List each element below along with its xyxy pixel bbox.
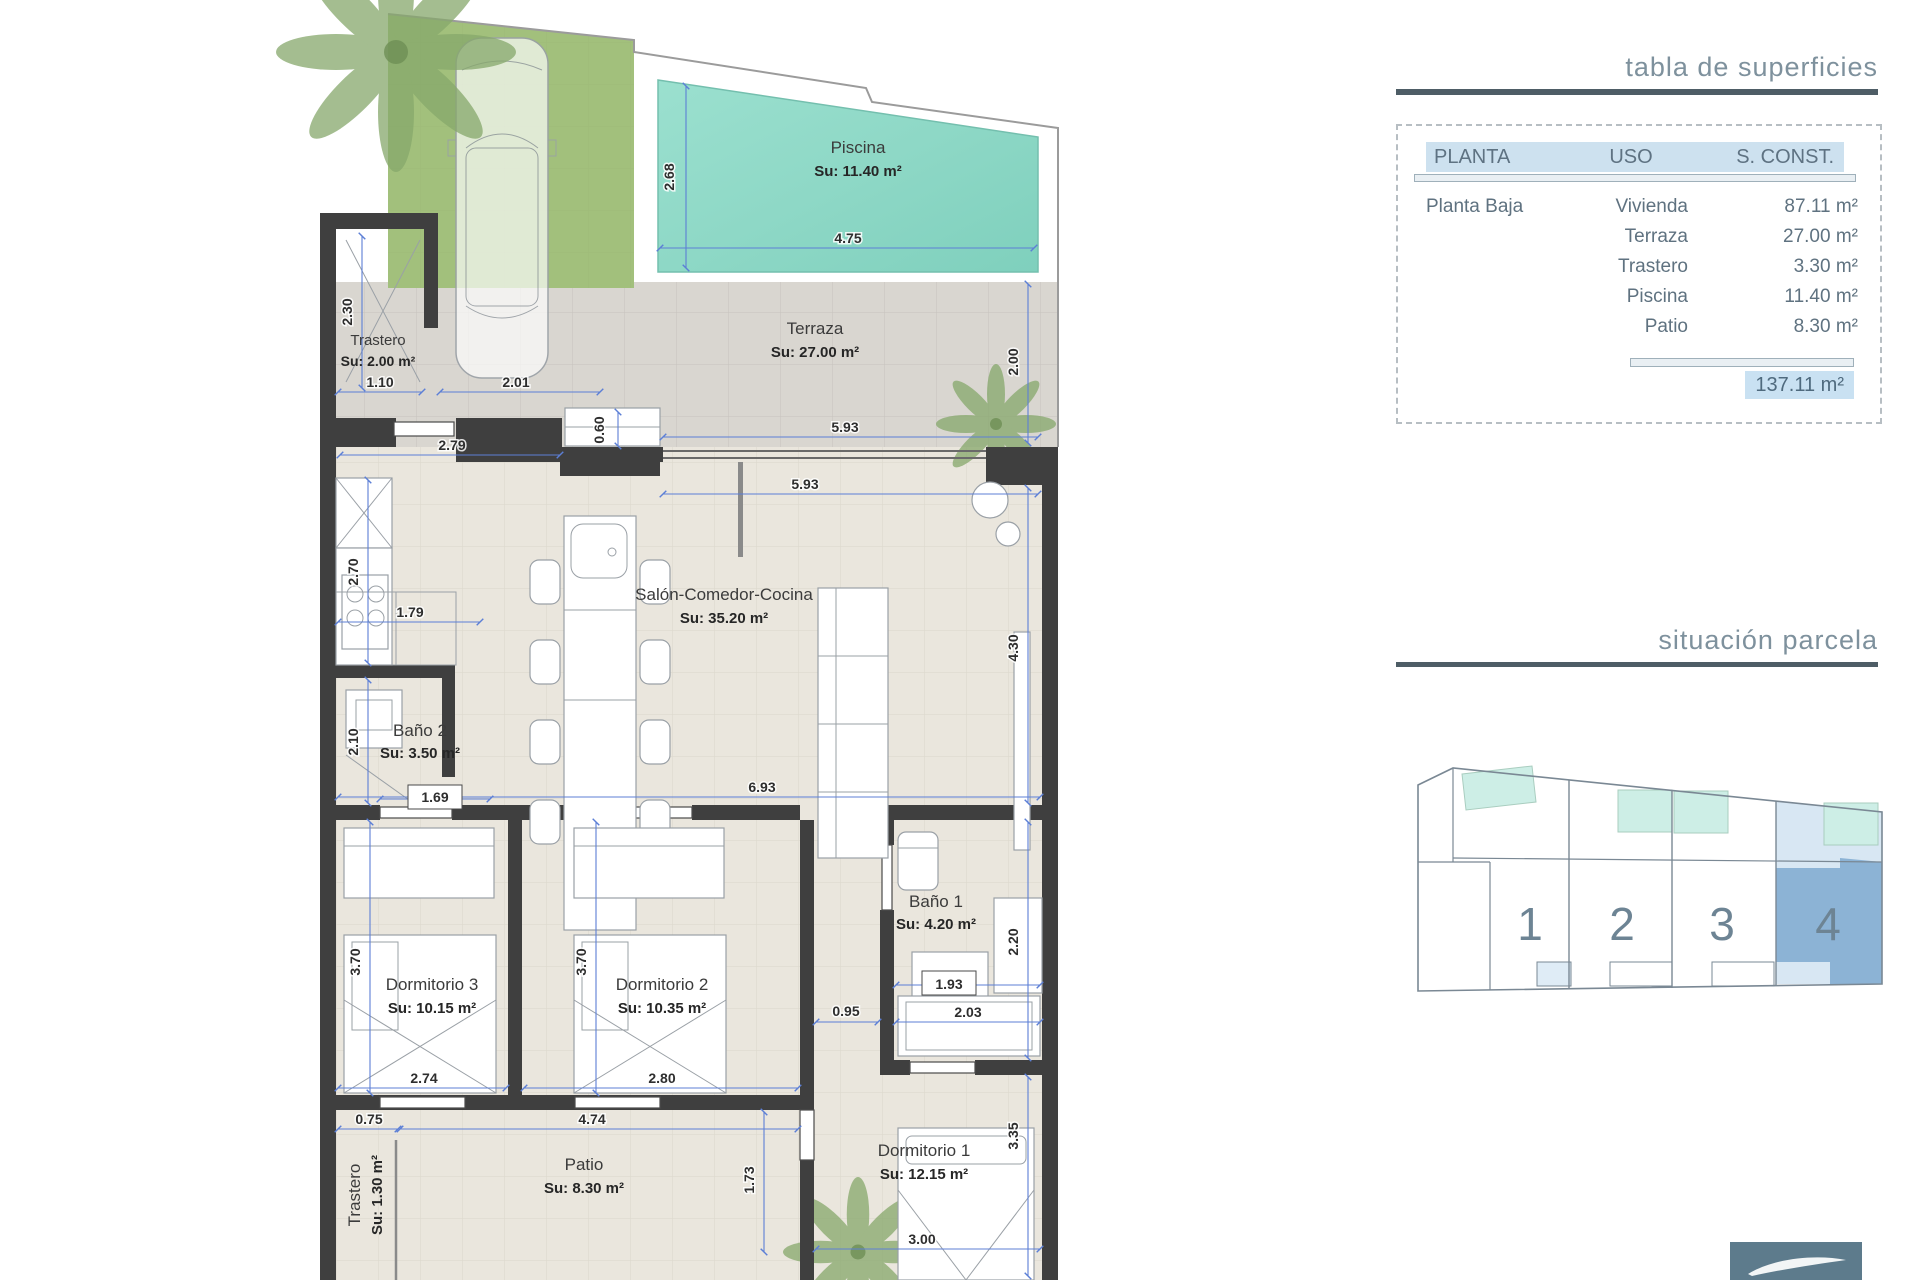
cell-sup: 27.00 m² bbox=[1688, 226, 1858, 248]
parcela-diagram: 1 2 3 4 bbox=[1396, 700, 1896, 1040]
room-label-dorm3: Dormitorio 3 bbox=[386, 975, 479, 994]
dim-kitchen-width: 2.79 bbox=[438, 437, 465, 453]
cell-planta: Planta Baja bbox=[1426, 196, 1554, 218]
header-planta: PLANTA bbox=[1426, 146, 1566, 169]
cell-uso: Patio bbox=[1554, 316, 1688, 338]
cell-uso: Piscina bbox=[1554, 286, 1688, 308]
plant-pot-icon bbox=[972, 482, 1008, 518]
unit-number-3: 3 bbox=[1709, 898, 1735, 950]
room-area-bano1: Su: 4.20 m² bbox=[896, 916, 976, 933]
header-divider-bar bbox=[1414, 174, 1856, 182]
car bbox=[448, 38, 556, 378]
table-row: Patio 8.30 m² bbox=[1426, 312, 1858, 342]
cell-sup: 11.40 m² bbox=[1688, 286, 1858, 308]
surface-table: PLANTA USO S. CONST. Planta Baja Viviend… bbox=[1396, 124, 1882, 424]
room-area-patio: Su: 8.30 m² bbox=[544, 1180, 624, 1197]
dim-bano1-sink: 1.93 bbox=[935, 976, 962, 992]
room-label-trastero-bottom: Trastero bbox=[345, 1164, 364, 1227]
dim-bano1-shower: 2.03 bbox=[954, 1004, 981, 1020]
table-row: Planta Baja Vivienda 87.11 m² bbox=[1426, 192, 1858, 222]
room-label-piscina: Piscina bbox=[831, 138, 886, 157]
dim-bano1-height: 2.20 bbox=[1005, 928, 1021, 955]
dim-salon-width: 6.93 bbox=[748, 779, 775, 795]
dim-dorm3-height: 3.70 bbox=[347, 948, 363, 975]
dim-kitchen-depth: 1.79 bbox=[396, 604, 423, 620]
cell-sup: 3.30 m² bbox=[1688, 256, 1858, 278]
dim-dorm1-width: 3.00 bbox=[908, 1231, 935, 1247]
plant-pot-icon bbox=[996, 522, 1020, 546]
room-label-trastero-top: Trastero bbox=[350, 332, 405, 349]
dim-patio-width: 4.74 bbox=[578, 1111, 605, 1127]
logo-swoosh-icon bbox=[1730, 1242, 1862, 1280]
header-sconst: S. CONST. bbox=[1696, 146, 1844, 169]
dim-bano2-door: 1.69 bbox=[421, 789, 448, 805]
room-area-piscina: Su: 11.40 m² bbox=[814, 163, 902, 180]
total-wrap: 137.11 m² bbox=[1745, 374, 1854, 397]
room-area-trastero-top: Su: 2.00 m² bbox=[341, 353, 416, 369]
toilet-icon bbox=[898, 832, 938, 890]
dim-salon-top-width: 5.93 bbox=[791, 476, 818, 492]
room-area-salon: Su: 35.20 m² bbox=[680, 610, 768, 627]
dim-hall-width: 0.95 bbox=[832, 1003, 859, 1019]
room-label-terraza: Terraza bbox=[787, 319, 844, 338]
unit2-notch bbox=[1610, 962, 1672, 986]
total-surface: 137.11 m² bbox=[1745, 371, 1854, 399]
dim-terraza-width: 5.93 bbox=[831, 419, 858, 435]
unit2-pool bbox=[1618, 790, 1672, 832]
dim-trastero-door: 1.10 bbox=[366, 374, 393, 390]
room-area-bano2: Su: 3.50 m² bbox=[380, 745, 460, 762]
room-label-dorm2: Dormitorio 2 bbox=[616, 975, 709, 994]
table-row: Piscina 11.40 m² bbox=[1426, 282, 1858, 312]
dim-bano2-height: 2.10 bbox=[345, 728, 361, 755]
header-uso: USO bbox=[1566, 146, 1696, 169]
dim-pool-width: 4.75 bbox=[834, 230, 861, 246]
dim-terraza-height: 2.00 bbox=[1005, 348, 1021, 375]
dim-dorm2-width: 2.80 bbox=[648, 1070, 675, 1086]
dim-kitchen-height: 2.70 bbox=[345, 558, 361, 585]
sofa bbox=[818, 588, 888, 858]
parcela-title: situación parcela bbox=[1396, 625, 1878, 656]
surface-table-title: tabla de superficies bbox=[1396, 52, 1878, 83]
room-label-bano2: Baño 2 bbox=[393, 721, 447, 740]
unit3-pool bbox=[1674, 791, 1728, 833]
dim-salon-height: 4.30 bbox=[1005, 634, 1021, 661]
unit3-notch bbox=[1712, 962, 1774, 986]
dim-dorm3-width: 2.74 bbox=[410, 1070, 437, 1086]
builder-logo bbox=[1730, 1242, 1862, 1280]
surface-table-header: PLANTA USO S. CONST. bbox=[1426, 142, 1844, 172]
room-area-trastero-bottom: Su: 1.30 m² bbox=[369, 1155, 386, 1235]
parcela-title-bar bbox=[1396, 662, 1878, 667]
cell-sup: 87.11 m² bbox=[1688, 196, 1858, 218]
room-area-dorm3: Su: 10.15 m² bbox=[388, 1000, 476, 1017]
room-label-salon: Salón-Comedor-Cocina bbox=[635, 585, 813, 604]
table-row: Terraza 27.00 m² bbox=[1426, 222, 1858, 252]
room-area-dorm1: Su: 12.15 m² bbox=[880, 1166, 968, 1183]
dim-entry-step: 0.60 bbox=[591, 416, 607, 443]
room-area-dorm2: Su: 10.35 m² bbox=[618, 1000, 706, 1017]
unit-number-4: 4 bbox=[1815, 898, 1841, 950]
surface-table-rows: Planta Baja Vivienda 87.11 m² Terraza 27… bbox=[1426, 192, 1858, 342]
dim-patio-height: 1.73 bbox=[741, 1166, 757, 1193]
dim-pool-height: 2.68 bbox=[661, 163, 677, 190]
cell-uso: Terraza bbox=[1554, 226, 1688, 248]
dim-patio-offset: 0.75 bbox=[355, 1111, 382, 1127]
cell-uso: Trastero bbox=[1554, 256, 1688, 278]
unit1-notch bbox=[1537, 962, 1571, 986]
surface-table-title-bar bbox=[1396, 89, 1878, 95]
unit4-notch bbox=[1776, 962, 1830, 984]
cell-uso: Vivienda bbox=[1554, 196, 1688, 218]
room-label-bano1: Baño 1 bbox=[909, 892, 963, 911]
table-row: Trastero 3.30 m² bbox=[1426, 252, 1858, 282]
cell-sup: 8.30 m² bbox=[1688, 316, 1858, 338]
dim-dorm1-height: 3.35 bbox=[1005, 1122, 1021, 1149]
dim-trastero-height: 2.30 bbox=[339, 298, 355, 325]
page: { "floorplan": { "rooms": [ {"name": "Pi… bbox=[0, 0, 1920, 1280]
room-label-dorm1: Dormitorio 1 bbox=[878, 1141, 971, 1160]
dim-driveway-width: 2.01 bbox=[502, 374, 529, 390]
room-label-patio: Patio bbox=[565, 1155, 604, 1174]
unit-number-1: 1 bbox=[1517, 898, 1543, 950]
room-area-terraza: Su: 27.00 m² bbox=[771, 344, 859, 361]
dim-dorm2-height: 3.70 bbox=[573, 948, 589, 975]
unit-number-2: 2 bbox=[1609, 898, 1635, 950]
total-divider-bar bbox=[1630, 358, 1854, 367]
